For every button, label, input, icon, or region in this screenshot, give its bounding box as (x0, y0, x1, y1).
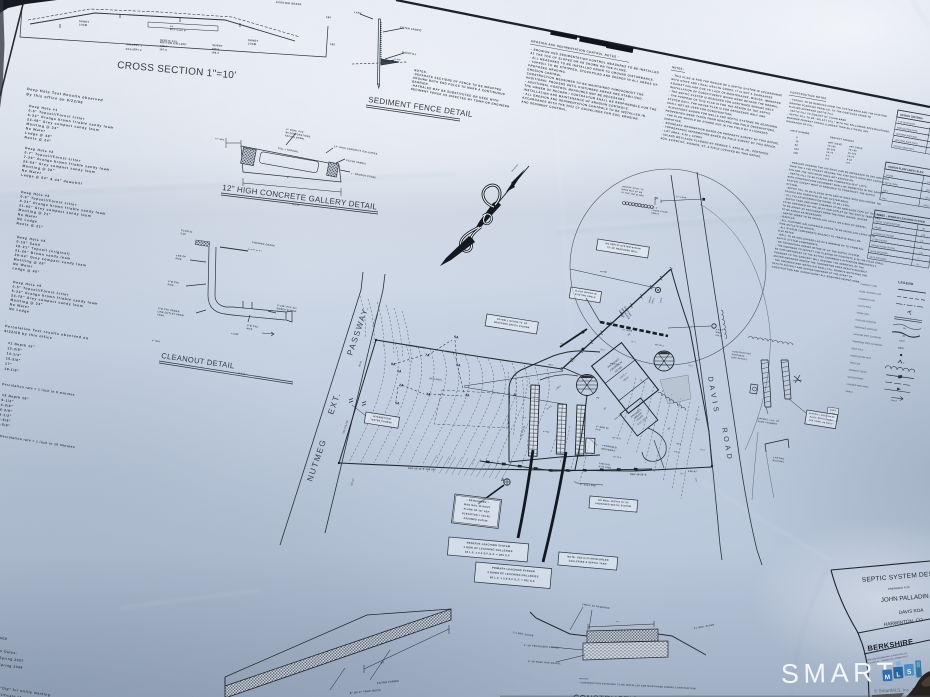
svg-text:180: 180 (330, 42, 336, 46)
svg-text:13': 13' (616, 621, 620, 623)
svg-text:34': 34' (170, 25, 174, 28)
svg-text:L: L (896, 671, 900, 678)
svg-text:LOAM: LOAM (79, 22, 88, 27)
svg-text:126.47': 126.47' (688, 470, 698, 473)
svg-text:LOAM: LOAM (248, 41, 257, 46)
svg-text:190: 190 (326, 15, 332, 19)
svg-text:161.9: 161.9 (680, 473, 685, 475)
svg-text:N89°49'59"E: N89°49'59"E (630, 473, 647, 477)
svg-text:s: s (648, 411, 649, 413)
svg-text:SMART: SMART (781, 657, 899, 689)
svg-text:M: M (885, 674, 891, 681)
